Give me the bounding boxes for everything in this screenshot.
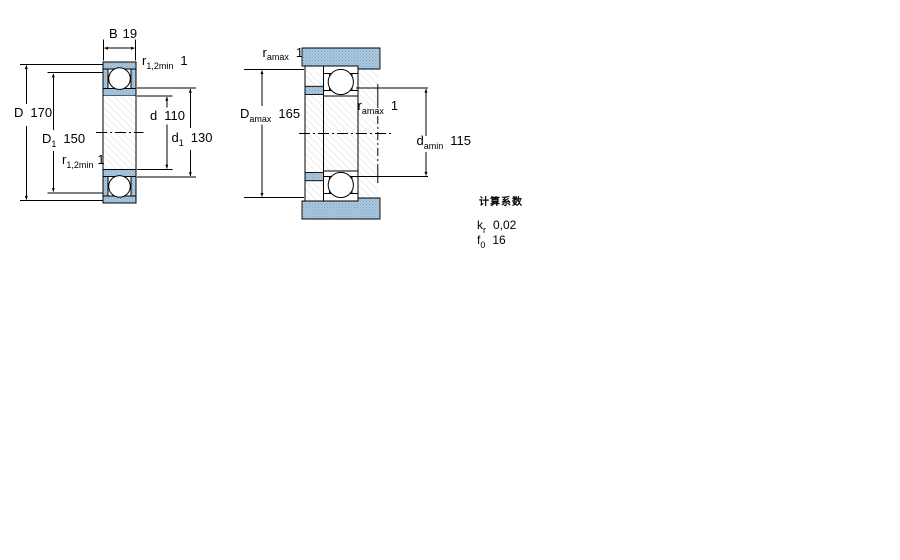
dim-label-damin: damin115 bbox=[417, 134, 471, 147]
ring-shoulder bbox=[131, 69, 136, 88]
dim-label-B: B19 bbox=[109, 27, 137, 40]
dim-label-d1: d1130 bbox=[172, 131, 213, 144]
ball-top bbox=[109, 68, 131, 90]
ball-bottom bbox=[109, 176, 131, 198]
dim-label-Damax: Damax165 bbox=[240, 107, 300, 120]
ring-shoulder bbox=[103, 69, 108, 88]
ball-bottom bbox=[328, 172, 353, 197]
mounted-bearing-bottom bbox=[324, 171, 359, 201]
dim-label-d: d110 bbox=[150, 109, 185, 122]
dim-label-ramax-mid: ramax1 bbox=[358, 99, 399, 112]
calc-factors-heading: 计算系数 bbox=[479, 197, 523, 208]
technical-drawing-canvas bbox=[0, 0, 900, 560]
dim-label-ramax-top: ramax1 bbox=[263, 46, 304, 59]
bearing-drawing-page: B19 r1,2min1 D170 D1150 r1,2min1 d110 d1… bbox=[0, 0, 900, 560]
dim-label-r12min-bottom: r1,2min1 bbox=[62, 153, 105, 166]
dim-label-r12min-top: r1,2min1 bbox=[142, 54, 188, 67]
calc-factor-f0: f016 bbox=[477, 234, 506, 246]
dim-label-D1: D1150 bbox=[42, 132, 85, 145]
mounting-figure bbox=[299, 48, 391, 219]
mounted-bearing-top bbox=[324, 66, 359, 96]
shaft-shoulder-bottom bbox=[305, 173, 324, 181]
ball-top bbox=[328, 69, 353, 94]
calc-factor-kr: kr0,02 bbox=[477, 219, 516, 231]
ring-shoulder bbox=[103, 177, 108, 196]
ring-shoulder bbox=[131, 177, 136, 196]
bearing-section-figure bbox=[96, 62, 144, 203]
shaft-shoulder-top bbox=[305, 86, 324, 94]
dim-label-D: D170 bbox=[14, 106, 52, 119]
